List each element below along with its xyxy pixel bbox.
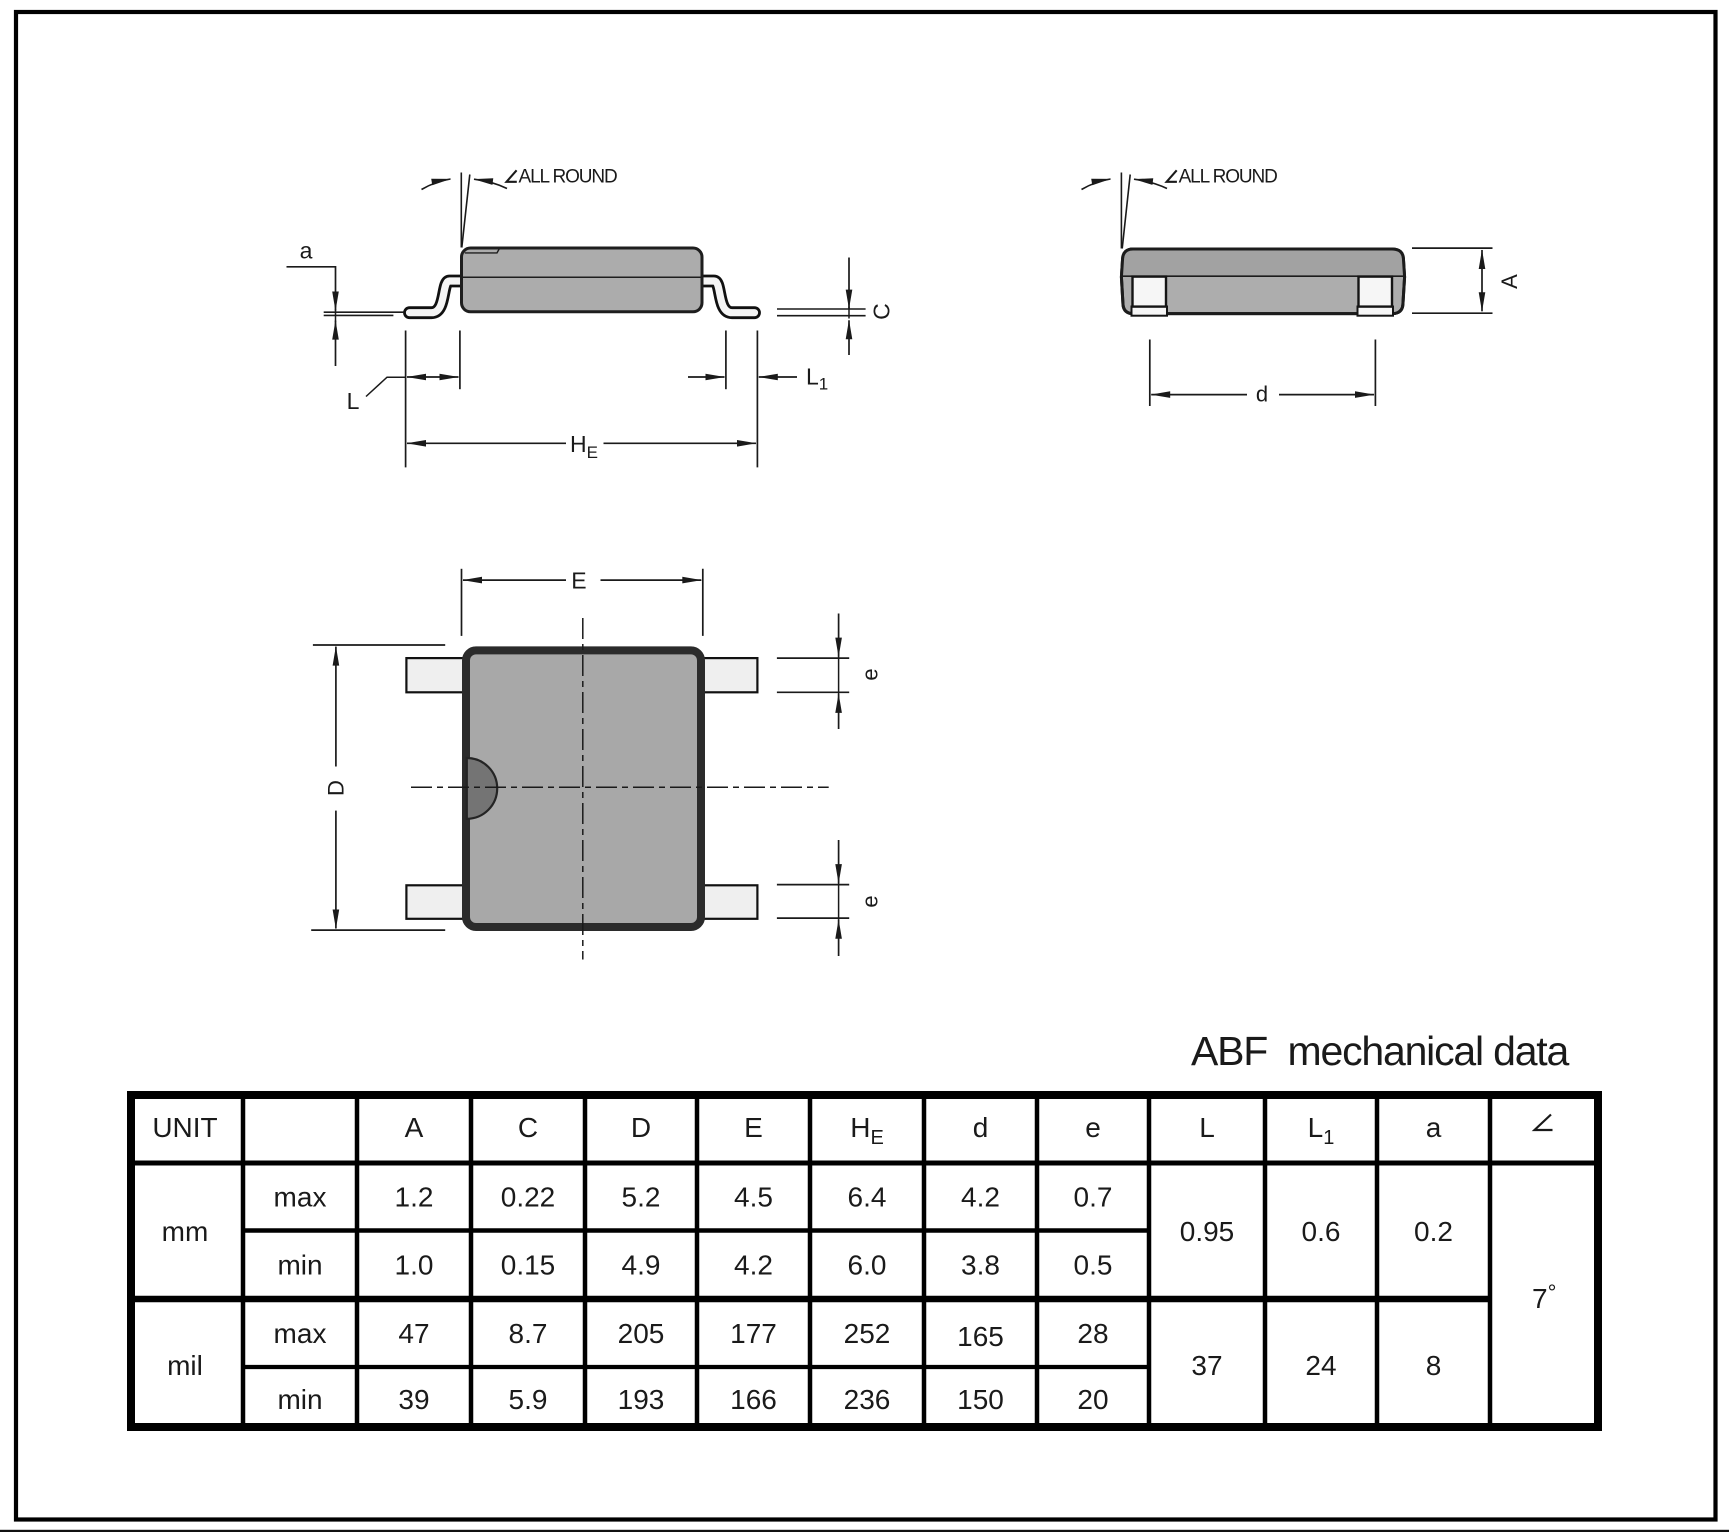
svg-text:47: 47: [398, 1318, 429, 1349]
svg-text:e: e: [858, 895, 883, 907]
svg-text:4.9: 4.9: [622, 1250, 661, 1281]
svg-text:37: 37: [1191, 1350, 1222, 1381]
svg-text:5.2: 5.2: [622, 1182, 661, 1213]
svg-text:d: d: [1256, 382, 1268, 407]
svg-text:6.0: 6.0: [848, 1250, 887, 1281]
svg-text:6.4: 6.4: [848, 1182, 887, 1213]
svg-text:3.8: 3.8: [961, 1250, 1000, 1281]
svg-text:mm: mm: [162, 1216, 209, 1247]
svg-text:0.95: 0.95: [1180, 1216, 1235, 1247]
svg-text:236: 236: [844, 1384, 891, 1415]
svg-text:24: 24: [1305, 1350, 1336, 1381]
svg-text:0.2: 0.2: [1414, 1216, 1453, 1247]
svg-text:1.0: 1.0: [395, 1250, 434, 1281]
svg-text:e: e: [858, 668, 883, 680]
svg-text:39: 39: [398, 1384, 429, 1415]
svg-text:ALL ROUND: ALL ROUND: [1179, 166, 1278, 187]
svg-text:20: 20: [1077, 1384, 1108, 1415]
svg-text:252: 252: [844, 1318, 891, 1349]
svg-text:ABF mechanical data: ABF mechanical data: [1191, 1028, 1569, 1074]
svg-text:0.7: 0.7: [1074, 1182, 1113, 1213]
svg-text:UNIT: UNIT: [152, 1112, 217, 1143]
svg-text:8.7: 8.7: [509, 1318, 548, 1349]
svg-text:5.9: 5.9: [509, 1384, 548, 1415]
svg-text:max: max: [274, 1182, 327, 1213]
svg-text:165: 165: [957, 1321, 1004, 1352]
svg-text:L: L: [1199, 1112, 1215, 1143]
svg-text:0.22: 0.22: [501, 1182, 556, 1213]
svg-text:4.5: 4.5: [734, 1182, 773, 1213]
svg-text:166: 166: [730, 1384, 777, 1415]
svg-text:0.6: 0.6: [1302, 1216, 1341, 1247]
svg-text:177: 177: [730, 1318, 777, 1349]
svg-text:4.2: 4.2: [961, 1182, 1000, 1213]
svg-text:150: 150: [957, 1384, 1004, 1415]
svg-text:e: e: [1085, 1112, 1101, 1143]
svg-text:4.2: 4.2: [734, 1250, 773, 1281]
svg-text:E: E: [744, 1112, 763, 1143]
svg-text:D: D: [631, 1112, 651, 1143]
svg-text:d: d: [973, 1112, 989, 1143]
svg-text:C: C: [869, 303, 895, 320]
svg-text:a: a: [1426, 1112, 1442, 1143]
svg-text:mil: mil: [167, 1350, 203, 1381]
svg-text:28: 28: [1077, 1318, 1108, 1349]
svg-text:A: A: [1497, 274, 1522, 289]
svg-text:D: D: [323, 780, 348, 796]
svg-text:ALL ROUND: ALL ROUND: [519, 166, 618, 187]
svg-text:0.15: 0.15: [501, 1250, 556, 1281]
svg-text:C: C: [518, 1112, 538, 1143]
svg-text:205: 205: [618, 1318, 665, 1349]
svg-text:min: min: [277, 1250, 322, 1281]
svg-text:8: 8: [1426, 1350, 1442, 1381]
svg-text:max: max: [274, 1318, 327, 1349]
svg-text:A: A: [405, 1112, 424, 1143]
svg-text:min: min: [277, 1384, 322, 1415]
svg-text:193: 193: [618, 1384, 665, 1415]
svg-text:1.2: 1.2: [395, 1182, 434, 1213]
svg-text:a: a: [300, 238, 313, 264]
svg-text:E: E: [571, 568, 586, 594]
svg-text:L: L: [347, 388, 360, 414]
svg-text:0.5: 0.5: [1074, 1250, 1113, 1281]
